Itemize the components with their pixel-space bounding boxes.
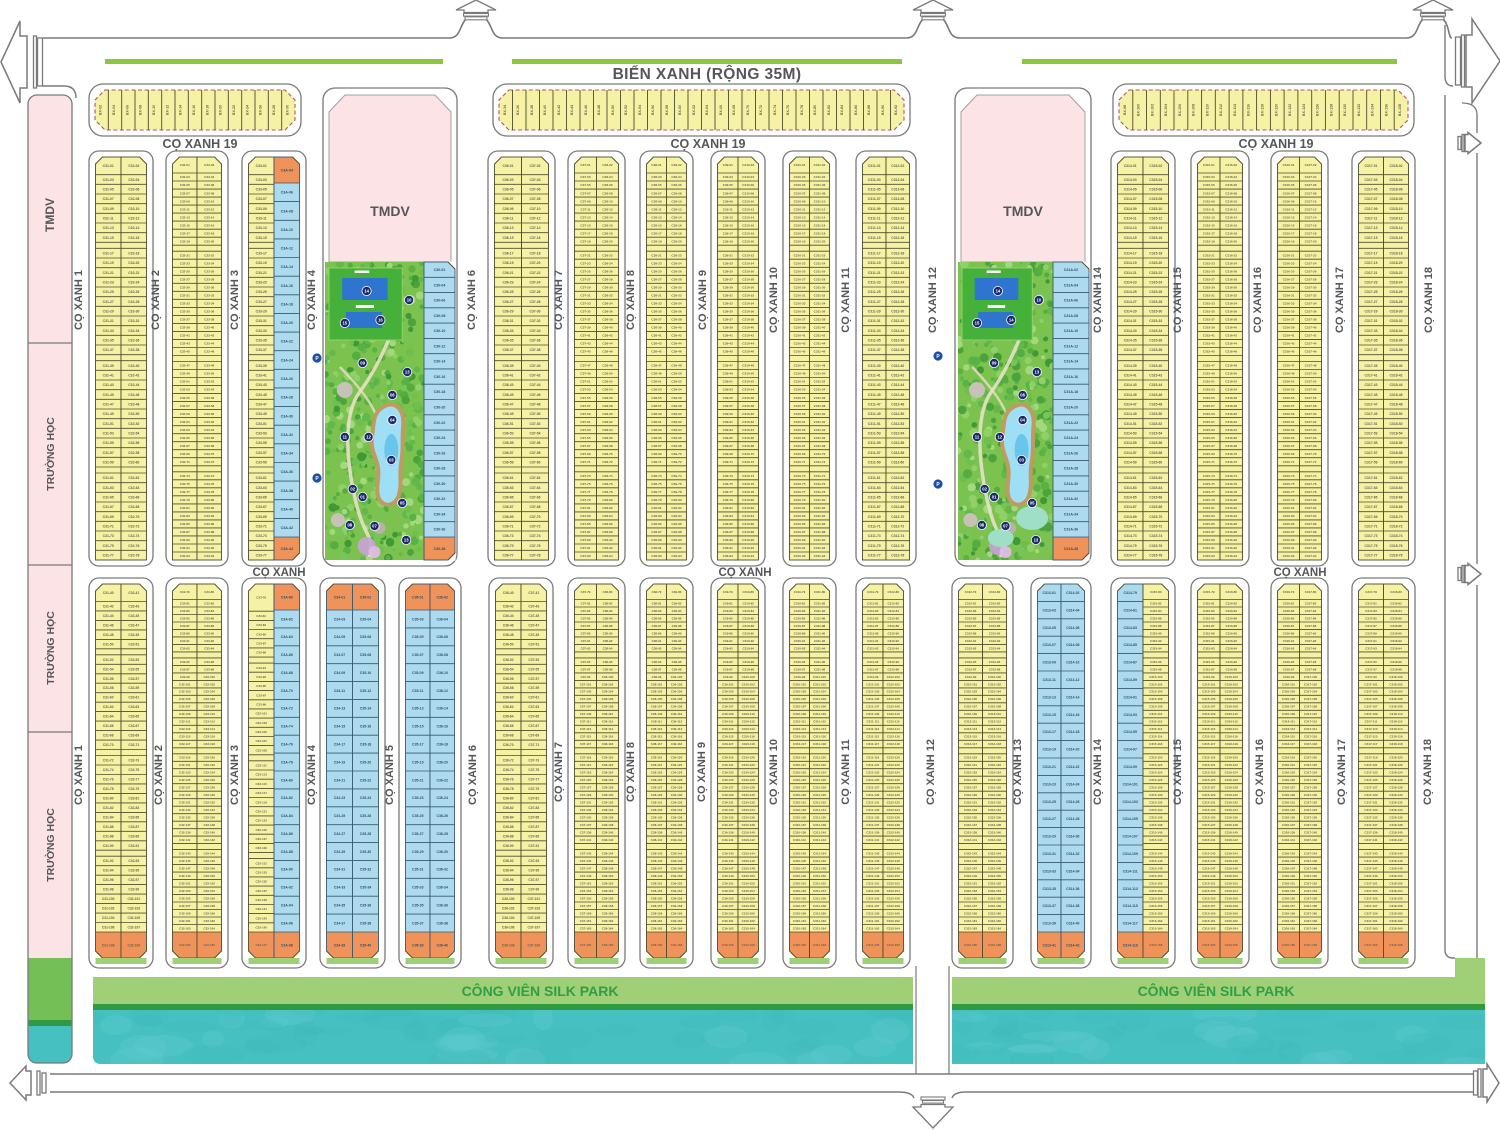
svg-text:C33-07: C33-07 bbox=[256, 197, 267, 201]
svg-text:C37-34: C37-34 bbox=[529, 329, 540, 333]
svg-text:BX-56: BX-56 bbox=[651, 105, 655, 115]
svg-text:C314-103: C314-103 bbox=[1123, 800, 1138, 804]
svg-text:C311-117: C311-117 bbox=[866, 742, 879, 746]
svg-text:C32-43: C32-43 bbox=[180, 342, 190, 346]
svg-text:C39-46: C39-46 bbox=[671, 350, 681, 354]
svg-text:C317-01: C317-01 bbox=[1364, 164, 1377, 168]
svg-text:C32-01: C32-01 bbox=[180, 163, 190, 167]
svg-text:C311-52: C311-52 bbox=[814, 380, 826, 384]
svg-text:C38-140: C38-140 bbox=[602, 831, 614, 835]
svg-text:C31-17: C31-17 bbox=[103, 252, 114, 256]
svg-text:C315-88: C315-88 bbox=[1150, 624, 1162, 628]
svg-text:C32-103: C32-103 bbox=[179, 690, 191, 694]
svg-text:C34-11: C34-11 bbox=[334, 689, 345, 693]
svg-text:C38-163: C38-163 bbox=[651, 926, 663, 930]
svg-text:C36-39: C36-39 bbox=[502, 364, 513, 368]
svg-text:C314-73: C314-73 bbox=[1124, 534, 1137, 538]
svg-text:C310-86: C310-86 bbox=[742, 616, 754, 620]
svg-text:C33-118: C33-118 bbox=[204, 742, 216, 746]
svg-text:C314-77: C314-77 bbox=[1124, 554, 1137, 558]
svg-text:C311-116: C311-116 bbox=[813, 735, 826, 739]
svg-text:C312-64: C312-64 bbox=[891, 486, 904, 490]
svg-text:C315-159: C315-159 bbox=[1202, 911, 1216, 915]
svg-text:C311-41: C311-41 bbox=[868, 374, 881, 378]
svg-text:CỌ XANH 14: CỌ XANH 14 bbox=[1092, 266, 1104, 333]
svg-text:C310-20: C310-20 bbox=[742, 239, 754, 243]
svg-text:C317-165: C317-165 bbox=[1364, 943, 1378, 947]
svg-text:C310-38: C310-38 bbox=[742, 318, 754, 322]
svg-text:C31-55: C31-55 bbox=[103, 441, 114, 445]
svg-text:C316-79: C316-79 bbox=[1283, 498, 1295, 502]
svg-text:C37-83: C37-83 bbox=[528, 806, 539, 810]
svg-text:C310-24: C310-24 bbox=[742, 261, 754, 265]
svg-text:C316-97: C316-97 bbox=[1283, 667, 1295, 671]
svg-text:C312-72: C312-72 bbox=[891, 525, 904, 529]
svg-text:C37-13: C37-13 bbox=[580, 215, 590, 219]
svg-text:C36-11: C36-11 bbox=[503, 217, 514, 221]
svg-text:C36-33: C36-33 bbox=[502, 329, 513, 333]
svg-text:C315-118: C315-118 bbox=[1149, 742, 1162, 746]
svg-text:C316-94: C316-94 bbox=[1225, 646, 1237, 650]
svg-text:CỌ XANH 11: CỌ XANH 11 bbox=[840, 739, 852, 804]
svg-text:C316-12: C316-12 bbox=[1225, 207, 1237, 211]
svg-text:C3A-32: C3A-32 bbox=[281, 433, 293, 437]
svg-text:C32-91: C32-91 bbox=[128, 844, 139, 848]
svg-text:C312-106: C312-106 bbox=[887, 697, 901, 701]
svg-text:C32-34: C32-34 bbox=[128, 329, 139, 333]
svg-text:C31-63: C31-63 bbox=[103, 486, 114, 490]
svg-text:C38-93: C38-93 bbox=[651, 554, 661, 558]
svg-text:C313-88: C313-88 bbox=[989, 624, 1001, 628]
svg-text:C310-80: C310-80 bbox=[742, 590, 754, 594]
svg-text:C316-118: C316-118 bbox=[1225, 742, 1238, 746]
svg-text:C312-92: C312-92 bbox=[887, 639, 899, 643]
svg-text:C313-166: C313-166 bbox=[988, 943, 1002, 947]
svg-text:C37-85: C37-85 bbox=[581, 616, 591, 620]
svg-text:C312-52: C312-52 bbox=[891, 422, 904, 426]
svg-text:C33-148: C33-148 bbox=[203, 867, 215, 871]
svg-text:C34-13: C34-13 bbox=[334, 707, 346, 711]
svg-text:C315-58: C315-58 bbox=[1149, 451, 1162, 455]
svg-text:C3A-98: C3A-98 bbox=[281, 943, 293, 947]
svg-text:C310-22: C310-22 bbox=[742, 253, 754, 257]
svg-text:C33-62: C33-62 bbox=[204, 420, 214, 424]
svg-text:C36-47: C36-47 bbox=[502, 403, 513, 407]
svg-text:C31-106: C31-106 bbox=[102, 926, 115, 930]
svg-text:C33-74: C33-74 bbox=[204, 474, 214, 478]
svg-text:C33-107: C33-107 bbox=[255, 739, 267, 743]
svg-text:C315-150: C315-150 bbox=[1149, 874, 1163, 878]
svg-text:C36-29: C36-29 bbox=[502, 310, 513, 314]
svg-text:C39-26: C39-26 bbox=[671, 269, 681, 273]
svg-text:C314-83: C314-83 bbox=[1123, 626, 1136, 630]
svg-text:C315-53: C315-53 bbox=[1203, 388, 1215, 392]
svg-text:C311-108: C311-108 bbox=[813, 705, 826, 709]
svg-text:C38-158: C38-158 bbox=[602, 904, 614, 908]
svg-text:C35-35: C35-35 bbox=[412, 904, 424, 908]
svg-text:C317-24: C317-24 bbox=[1305, 261, 1317, 265]
svg-text:C310-163: C310-163 bbox=[793, 926, 807, 930]
svg-text:C318-46: C318-46 bbox=[1389, 393, 1402, 397]
svg-text:C316-119: C316-119 bbox=[1282, 756, 1295, 760]
svg-text:C37-135: C37-135 bbox=[580, 816, 592, 820]
svg-text:C310-131: C310-131 bbox=[793, 801, 807, 805]
svg-text:C316-73: C316-73 bbox=[1283, 474, 1295, 478]
svg-text:C32-97: C32-97 bbox=[180, 667, 190, 671]
svg-text:15: 15 bbox=[975, 321, 980, 326]
svg-text:C318-148: C318-148 bbox=[1389, 867, 1403, 871]
svg-text:C37-64: C37-64 bbox=[529, 486, 540, 490]
svg-text:BX-134: BX-134 bbox=[1371, 104, 1375, 116]
svg-text:C32-101: C32-101 bbox=[179, 682, 191, 686]
svg-text:C316-53: C316-53 bbox=[1283, 388, 1295, 392]
svg-text:C39-05: C39-05 bbox=[723, 183, 733, 187]
svg-text:C317-147: C317-147 bbox=[1364, 867, 1378, 871]
svg-text:C33-79: C33-79 bbox=[256, 596, 266, 600]
svg-text:C39-117: C39-117 bbox=[722, 742, 734, 746]
svg-text:C315-61: C315-61 bbox=[1203, 420, 1215, 424]
svg-text:C318-84: C318-84 bbox=[1390, 609, 1402, 613]
svg-text:C315-42: C315-42 bbox=[1149, 374, 1162, 378]
svg-text:C35-06: C35-06 bbox=[360, 635, 372, 639]
svg-text:BX-58: BX-58 bbox=[665, 105, 669, 115]
svg-text:C38-16: C38-16 bbox=[602, 223, 612, 227]
svg-text:C36-82: C36-82 bbox=[503, 806, 514, 810]
svg-text:C37-76: C37-76 bbox=[529, 544, 540, 548]
svg-text:C317-11: C317-11 bbox=[1365, 217, 1378, 221]
svg-text:C32-93: C32-93 bbox=[128, 859, 139, 863]
svg-text:C31-33: C31-33 bbox=[103, 329, 114, 333]
svg-text:C32-123: C32-123 bbox=[179, 771, 191, 775]
svg-text:C38-06: C38-06 bbox=[602, 183, 612, 187]
svg-text:C317-36: C317-36 bbox=[1305, 310, 1317, 314]
svg-text:10: 10 bbox=[407, 298, 412, 303]
svg-text:C33-101: C33-101 bbox=[255, 712, 267, 716]
svg-text:BIỂN XANH (RỘNG 35M): BIỂN XANH (RỘNG 35M) bbox=[613, 65, 802, 83]
svg-text:02: 02 bbox=[982, 487, 987, 492]
svg-text:C312-12: C312-12 bbox=[891, 217, 904, 221]
svg-text:C32-50: C32-50 bbox=[128, 412, 139, 416]
svg-text:C32-95: C32-95 bbox=[180, 660, 190, 664]
svg-text:C39-82: C39-82 bbox=[671, 506, 681, 510]
svg-text:C315-14: C315-14 bbox=[1149, 226, 1162, 230]
svg-text:C312-132: C312-132 bbox=[887, 801, 901, 805]
svg-text:C315-142: C315-142 bbox=[1149, 838, 1163, 842]
svg-text:C310-146: C310-146 bbox=[742, 859, 756, 863]
svg-text:C38-56: C38-56 bbox=[602, 396, 612, 400]
svg-text:C316-126: C316-126 bbox=[1225, 778, 1239, 782]
svg-text:C316-52: C316-52 bbox=[1225, 380, 1237, 384]
svg-text:C314-119: C314-119 bbox=[1123, 943, 1138, 947]
svg-text:C311-71: C311-71 bbox=[868, 525, 881, 529]
svg-text:C317-129: C317-129 bbox=[1364, 793, 1378, 797]
svg-text:C318-56: C318-56 bbox=[1389, 441, 1402, 445]
svg-text:C310-45: C310-45 bbox=[794, 350, 806, 354]
svg-text:C31A-04: C31A-04 bbox=[1064, 283, 1078, 287]
svg-text:C31-104: C31-104 bbox=[102, 916, 115, 920]
svg-text:C315-141: C315-141 bbox=[1202, 838, 1216, 842]
svg-text:C313-39: C313-39 bbox=[1042, 922, 1055, 926]
svg-text:C316-01: C316-01 bbox=[1283, 163, 1295, 167]
svg-text:C38-11: C38-11 bbox=[652, 207, 662, 211]
svg-text:C39-128: C39-128 bbox=[671, 786, 683, 790]
svg-text:C316-70: C316-70 bbox=[1225, 452, 1237, 456]
svg-text:C313-80: C313-80 bbox=[989, 590, 1001, 594]
svg-text:C312-93: C312-93 bbox=[965, 646, 977, 650]
svg-text:14: 14 bbox=[1009, 318, 1014, 323]
svg-text:C316-74: C316-74 bbox=[1225, 474, 1237, 478]
svg-text:C314-55: C314-55 bbox=[1124, 441, 1137, 445]
svg-text:C33-04: C33-04 bbox=[204, 175, 214, 179]
svg-text:CỌ XANH 17: CỌ XANH 17 bbox=[1336, 739, 1348, 805]
svg-text:C37-53: C37-53 bbox=[528, 658, 539, 662]
svg-text:C36-60: C36-60 bbox=[503, 696, 514, 700]
svg-text:C315-93: C315-93 bbox=[1203, 554, 1215, 558]
svg-text:CỌ XANH 18: CỌ XANH 18 bbox=[1422, 739, 1434, 805]
svg-text:C311-140: C311-140 bbox=[813, 831, 826, 835]
svg-text:C37-125: C37-125 bbox=[580, 778, 592, 782]
svg-text:C38-44: C38-44 bbox=[602, 342, 612, 346]
svg-text:11: 11 bbox=[975, 435, 980, 440]
svg-text:C317-09: C317-09 bbox=[1364, 207, 1377, 211]
svg-text:C39-43: C39-43 bbox=[723, 342, 733, 346]
svg-text:C317-86: C317-86 bbox=[1305, 616, 1317, 620]
svg-text:C314-65: C314-65 bbox=[1124, 496, 1137, 500]
svg-text:C314-43: C314-43 bbox=[1124, 383, 1137, 387]
svg-text:C38-14: C38-14 bbox=[602, 215, 612, 219]
svg-text:C33-82: C33-82 bbox=[204, 601, 214, 605]
svg-text:C314-97: C314-97 bbox=[1123, 748, 1136, 752]
svg-text:C313-25: C313-25 bbox=[1042, 800, 1055, 804]
svg-text:C312-159: C312-159 bbox=[964, 911, 978, 915]
svg-text:C316-84: C316-84 bbox=[1225, 514, 1237, 518]
svg-text:C310-15: C310-15 bbox=[794, 223, 806, 227]
svg-text:C32-46: C32-46 bbox=[128, 393, 139, 397]
svg-text:03: 03 bbox=[1019, 458, 1024, 463]
svg-text:C311-114: C311-114 bbox=[813, 727, 826, 731]
svg-text:C317-21: C317-21 bbox=[1364, 271, 1377, 275]
svg-text:C311-65: C311-65 bbox=[868, 496, 881, 500]
svg-text:C34-19: C34-19 bbox=[334, 760, 346, 764]
svg-text:C316-39: C316-39 bbox=[1283, 326, 1295, 330]
svg-text:C32-15: C32-15 bbox=[180, 223, 190, 227]
svg-text:C314-59: C314-59 bbox=[1124, 461, 1137, 465]
svg-text:C311-29: C311-29 bbox=[868, 310, 881, 314]
svg-text:C33-26: C33-26 bbox=[204, 269, 214, 273]
svg-text:C38-82: C38-82 bbox=[603, 601, 613, 605]
svg-text:C316-51: C316-51 bbox=[1283, 380, 1295, 384]
svg-text:C32-58: C32-58 bbox=[128, 451, 139, 455]
svg-text:C32-35: C32-35 bbox=[180, 310, 190, 314]
svg-text:C32-65: C32-65 bbox=[180, 436, 190, 440]
svg-text:C38-32: C38-32 bbox=[602, 294, 612, 298]
svg-text:C32-18: C32-18 bbox=[128, 252, 139, 256]
svg-text:C31-70: C31-70 bbox=[103, 743, 114, 747]
svg-text:C310-81: C310-81 bbox=[794, 601, 806, 605]
svg-text:C37-85: C37-85 bbox=[580, 522, 590, 526]
svg-text:C312-06: C312-06 bbox=[891, 188, 904, 192]
svg-text:C38-103: C38-103 bbox=[651, 690, 663, 694]
svg-text:C316-16: C316-16 bbox=[1225, 223, 1237, 227]
svg-text:C3A-92: C3A-92 bbox=[281, 886, 293, 890]
svg-text:C36-58: C36-58 bbox=[503, 686, 514, 690]
svg-text:C315-139: C315-139 bbox=[1202, 831, 1216, 835]
svg-text:C32-28: C32-28 bbox=[128, 300, 139, 304]
svg-text:C37-19: C37-19 bbox=[580, 239, 590, 243]
svg-text:C33-44: C33-44 bbox=[204, 342, 214, 346]
svg-text:C312-97: C312-97 bbox=[965, 667, 977, 671]
svg-text:C314-99: C314-99 bbox=[1123, 765, 1136, 769]
svg-text:CỌ XANH 5: CỌ XANH 5 bbox=[384, 745, 396, 805]
svg-text:C37-21: C37-21 bbox=[580, 253, 590, 257]
svg-text:C38-147: C38-147 bbox=[651, 867, 663, 871]
svg-text:C316-143: C316-143 bbox=[1282, 852, 1296, 856]
svg-text:C36-26: C36-26 bbox=[436, 814, 448, 818]
svg-text:C38-57: C38-57 bbox=[651, 404, 661, 408]
svg-text:C315-162: C315-162 bbox=[1149, 919, 1163, 923]
svg-text:C38-25: C38-25 bbox=[651, 269, 661, 273]
svg-text:C311-118: C311-118 bbox=[813, 742, 826, 746]
svg-text:C33-84: C33-84 bbox=[204, 609, 214, 613]
svg-text:C38-115: C38-115 bbox=[651, 735, 663, 739]
svg-text:C31-51: C31-51 bbox=[103, 422, 114, 426]
svg-text:C31-09: C31-09 bbox=[103, 207, 114, 211]
svg-text:C38-12: C38-12 bbox=[602, 207, 612, 211]
svg-text:C318-146: C318-146 bbox=[1389, 859, 1403, 863]
svg-text:C310-17: C310-17 bbox=[794, 231, 806, 235]
svg-text:C33-91: C33-91 bbox=[256, 666, 266, 670]
svg-text:C38-91: C38-91 bbox=[652, 639, 662, 643]
svg-text:C33-77: C33-77 bbox=[256, 554, 267, 558]
svg-text:C315-136: C315-136 bbox=[1149, 816, 1163, 820]
svg-text:C314-63: C314-63 bbox=[1124, 486, 1137, 490]
svg-text:C310-87: C310-87 bbox=[794, 530, 806, 534]
svg-text:C316-66: C316-66 bbox=[1225, 436, 1237, 440]
svg-text:C316-147: C316-147 bbox=[1282, 867, 1296, 871]
svg-text:C38-157: C38-157 bbox=[651, 904, 663, 908]
svg-text:C315-36: C315-36 bbox=[1149, 339, 1162, 343]
svg-text:C38-149: C38-149 bbox=[651, 874, 663, 878]
svg-text:C310-152: C310-152 bbox=[742, 882, 756, 886]
svg-text:C32-75: C32-75 bbox=[128, 768, 139, 772]
svg-text:C33-63: C33-63 bbox=[256, 486, 267, 490]
svg-text:C316-80: C316-80 bbox=[1225, 590, 1237, 594]
svg-text:C33-154: C33-154 bbox=[203, 889, 215, 893]
svg-text:C3A-42: C3A-42 bbox=[281, 526, 293, 530]
svg-text:C311-19: C311-19 bbox=[868, 261, 881, 265]
svg-text:C318-40: C318-40 bbox=[1389, 364, 1402, 368]
svg-text:C37-109: C37-109 bbox=[580, 712, 592, 716]
svg-text:C38-30: C38-30 bbox=[602, 286, 612, 290]
svg-text:C310-162: C310-162 bbox=[742, 919, 756, 923]
svg-text:C39-136: C39-136 bbox=[671, 816, 683, 820]
svg-text:C36-56: C36-56 bbox=[503, 677, 514, 681]
svg-text:C37-72: C37-72 bbox=[529, 525, 540, 529]
svg-text:C37-81: C37-81 bbox=[581, 601, 591, 605]
svg-text:C311-121: C311-121 bbox=[866, 763, 879, 767]
svg-text:C315-87: C315-87 bbox=[1203, 530, 1215, 534]
svg-text:C32-81: C32-81 bbox=[128, 796, 139, 800]
svg-text:C36-32: C36-32 bbox=[436, 868, 448, 872]
svg-text:BX-16: BX-16 bbox=[192, 105, 196, 115]
svg-text:C38-81: C38-81 bbox=[652, 601, 662, 605]
svg-text:C36-21: C36-21 bbox=[502, 271, 513, 275]
svg-text:C31-11: C31-11 bbox=[103, 217, 114, 221]
svg-text:C33-09: C33-09 bbox=[256, 207, 267, 211]
svg-text:C311-165: C311-165 bbox=[866, 943, 879, 947]
svg-text:C34-03: C34-03 bbox=[334, 617, 346, 621]
svg-text:C312-139: C312-139 bbox=[964, 831, 978, 835]
svg-text:C317-98: C317-98 bbox=[1305, 667, 1317, 671]
svg-text:C39-63: C39-63 bbox=[723, 428, 733, 432]
svg-text:C39-25: C39-25 bbox=[723, 269, 733, 273]
svg-text:C312-112: C312-112 bbox=[887, 720, 900, 724]
svg-text:C37-87: C37-87 bbox=[580, 530, 590, 534]
svg-text:C32-141: C32-141 bbox=[179, 838, 191, 842]
svg-text:C37-15: C37-15 bbox=[580, 223, 590, 227]
svg-text:C31A-30: C31A-30 bbox=[1064, 482, 1078, 486]
svg-text:C33-73: C33-73 bbox=[256, 534, 267, 538]
svg-text:C38-155: C38-155 bbox=[651, 896, 663, 900]
svg-text:C310-26: C310-26 bbox=[742, 269, 754, 273]
svg-text:C38-61: C38-61 bbox=[651, 420, 661, 424]
svg-text:C318-122: C318-122 bbox=[1389, 763, 1403, 767]
svg-text:C318-26: C318-26 bbox=[1389, 290, 1402, 294]
svg-text:C311-61: C311-61 bbox=[868, 476, 881, 480]
svg-text:C37-29: C37-29 bbox=[580, 286, 590, 290]
svg-text:C311-123: C311-123 bbox=[866, 771, 879, 775]
svg-text:C31-82: C31-82 bbox=[103, 806, 114, 810]
svg-text:C37-139: C37-139 bbox=[580, 831, 592, 835]
svg-text:C316-99: C316-99 bbox=[1283, 675, 1295, 679]
svg-text:C33-64: C33-64 bbox=[204, 428, 214, 432]
svg-text:C315-18: C315-18 bbox=[1149, 252, 1162, 256]
svg-text:C39-12: C39-12 bbox=[671, 207, 681, 211]
svg-text:C315-128: C315-128 bbox=[1149, 786, 1163, 790]
svg-text:C317-144: C317-144 bbox=[1304, 852, 1318, 856]
svg-text:C310-77: C310-77 bbox=[794, 490, 806, 494]
svg-text:C315-103: C315-103 bbox=[1202, 690, 1216, 694]
svg-text:C316-78: C316-78 bbox=[1225, 490, 1237, 494]
svg-text:C311-80: C311-80 bbox=[814, 498, 826, 502]
svg-text:C311-147: C311-147 bbox=[866, 867, 879, 871]
svg-text:C317-20: C317-20 bbox=[1305, 239, 1317, 243]
svg-text:C3A-68: C3A-68 bbox=[281, 671, 293, 675]
svg-text:C33-19: C33-19 bbox=[256, 261, 267, 265]
svg-text:C314-81: C314-81 bbox=[1123, 608, 1136, 612]
svg-text:C36-63: C36-63 bbox=[502, 486, 513, 490]
svg-text:C316-158: C316-158 bbox=[1225, 904, 1239, 908]
svg-text:CỌ XANH 16: CỌ XANH 16 bbox=[1252, 267, 1264, 333]
svg-text:C33-100: C33-100 bbox=[203, 675, 215, 679]
svg-text:C314-30: C314-30 bbox=[1066, 835, 1079, 839]
svg-text:C313-152: C313-152 bbox=[988, 882, 1002, 886]
svg-text:C313-90: C313-90 bbox=[989, 631, 1001, 635]
svg-text:C36-65: C36-65 bbox=[502, 496, 513, 500]
svg-text:BX-10: BX-10 bbox=[152, 105, 156, 115]
svg-text:C33-88: C33-88 bbox=[204, 530, 214, 534]
svg-text:C317-155: C317-155 bbox=[1364, 896, 1378, 900]
svg-text:C32-64: C32-64 bbox=[128, 486, 139, 490]
svg-text:C37-145: C37-145 bbox=[580, 859, 592, 863]
svg-text:BX-78: BX-78 bbox=[800, 105, 804, 115]
svg-text:C35-31: C35-31 bbox=[412, 868, 424, 872]
svg-text:C33-164: C33-164 bbox=[203, 926, 215, 930]
svg-text:C315-102: C315-102 bbox=[1149, 682, 1163, 686]
svg-text:C36-76: C36-76 bbox=[503, 778, 514, 782]
svg-text:C310-32: C310-32 bbox=[742, 294, 754, 298]
svg-text:C318-150: C318-150 bbox=[1389, 874, 1403, 878]
